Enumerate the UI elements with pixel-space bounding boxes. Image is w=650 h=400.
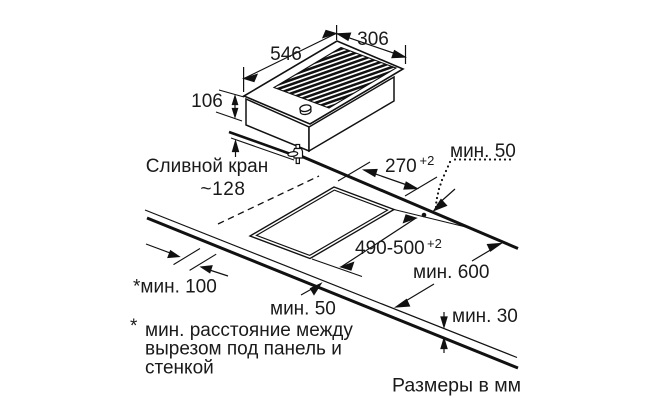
svg-text:270: 270 <box>385 156 417 177</box>
svg-text:мин. 50: мин. 50 <box>270 299 336 320</box>
svg-text:Сливной кран: Сливной кран <box>146 156 268 177</box>
svg-text:*: * <box>130 316 138 337</box>
svg-text:*мин. 100: *мин. 100 <box>133 277 217 298</box>
svg-text:мин. 30: мин. 30 <box>452 306 518 327</box>
svg-text:+2: +2 <box>427 236 442 251</box>
svg-text:106: 106 <box>191 91 223 112</box>
svg-text:490-500: 490-500 <box>355 238 425 259</box>
svg-text:546: 546 <box>270 44 302 65</box>
svg-text:стенкой: стенкой <box>145 358 214 379</box>
svg-text:мин. 50: мин. 50 <box>450 141 516 162</box>
svg-text:Размеры в мм: Размеры в мм <box>392 375 521 397</box>
svg-text:+2: +2 <box>420 153 435 168</box>
svg-text:~128: ~128 <box>200 179 245 200</box>
svg-text:мин. 600: мин. 600 <box>413 262 489 283</box>
svg-text:306: 306 <box>357 29 389 50</box>
svg-text:вырезом под панель и: вырезом под панель и <box>145 339 342 360</box>
